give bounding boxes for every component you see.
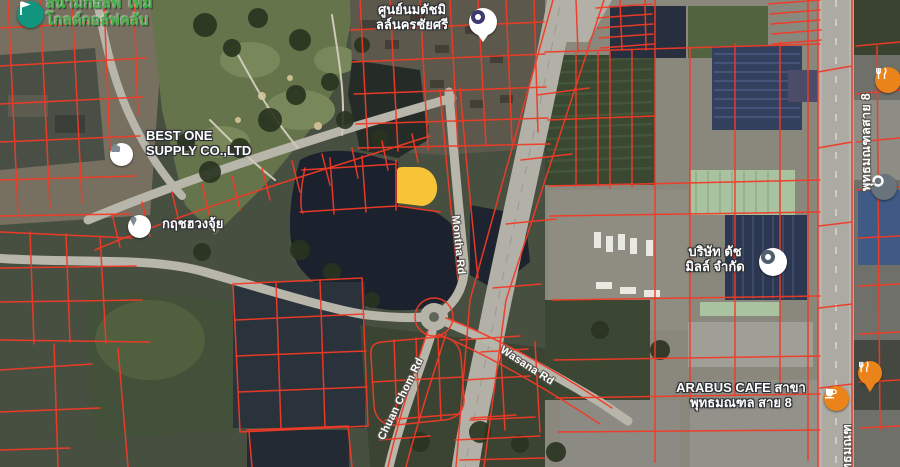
sai8-road-label-partial: พุทธมณฑ (840, 424, 854, 467)
golf-club-label[interactable]: สนามกอล์ฟ ใหม่ โกลด์กอล์ฟคลับ (46, 0, 153, 30)
golf-club-label-line2: โกลด์กอล์ฟคลับ (46, 13, 153, 30)
dutch-mill-center-label[interactable]: ศูนย์นมดัชมิ ลล์นครชัยศรี (352, 3, 472, 32)
golf-club-label-line1: สนามกอล์ฟ ใหม่ (46, 0, 153, 13)
restaurant-icon[interactable] (875, 67, 900, 93)
poi-ring-icon[interactable] (871, 174, 897, 200)
place-pin-icon[interactable] (110, 143, 133, 166)
golf-flag-icon[interactable] (17, 1, 44, 28)
arabus-cafe-label[interactable]: ARABUS CAFE สาขา พุทธมณฑล สาย 8 (652, 381, 830, 410)
factory-pin-icon[interactable] (759, 248, 787, 276)
place-pin-icon[interactable] (128, 215, 151, 238)
dairy-center-pin-icon[interactable] (469, 8, 497, 36)
krit-fengshui-label[interactable]: กฤชฮวงจุ้ย (162, 217, 223, 232)
dutch-mill-co-label[interactable]: บริษัท ดัช มิลล์ จำกัด (672, 245, 758, 274)
highlighted-parcel[interactable] (397, 167, 437, 206)
satellite-map-canvas[interactable]: สนามกอล์ฟ ใหม่ โกลด์กอล์ฟคลับ BEST ONE S… (0, 0, 900, 467)
restaurant-pin-icon[interactable] (858, 361, 882, 385)
best-one-label[interactable]: BEST ONE SUPPLY CO.,LTD (146, 129, 251, 158)
sai8-road-label: พุทธมณฑลสาย 8 (859, 93, 873, 191)
